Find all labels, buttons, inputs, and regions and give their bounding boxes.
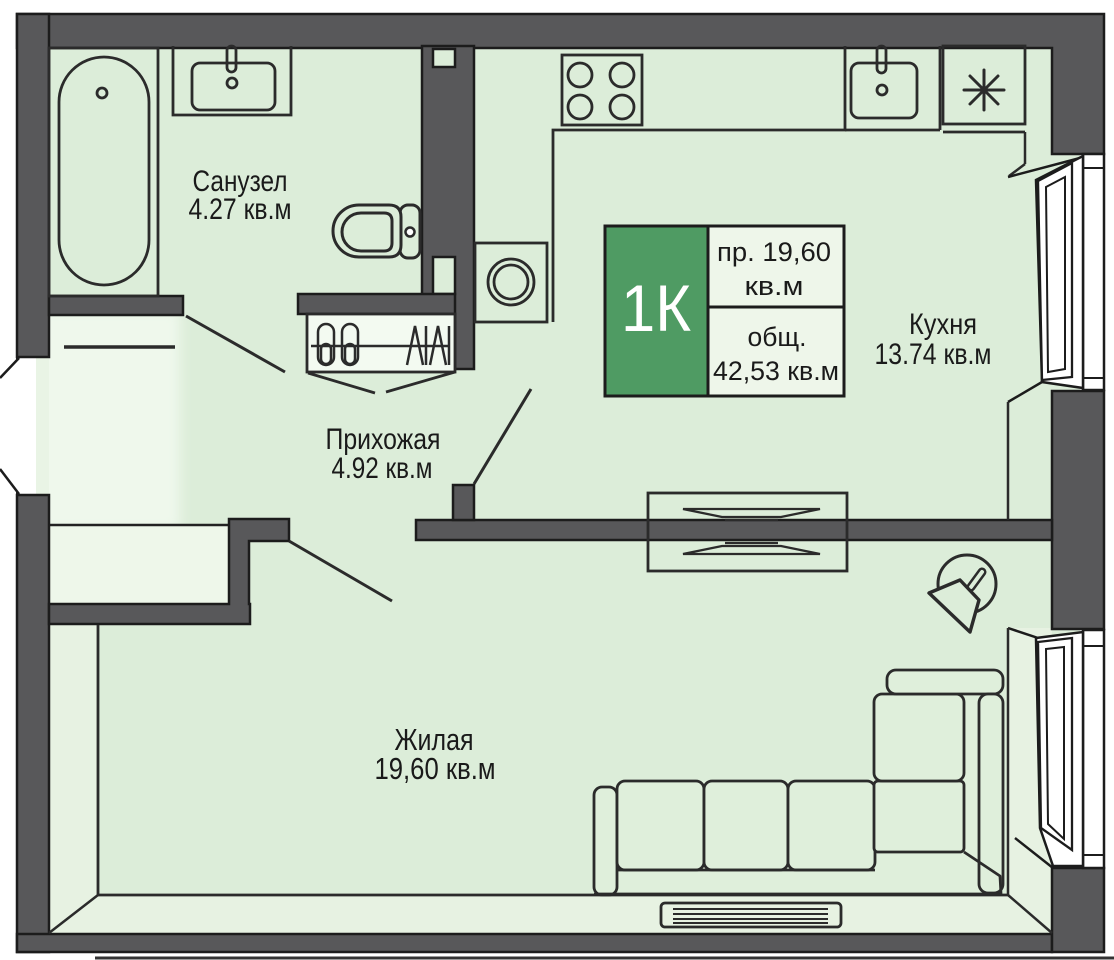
svg-text:Кухня: Кухня [909,308,977,341]
svg-text:1К: 1К [621,271,692,345]
svg-text:кв.м: кв.м [745,271,804,301]
svg-text:19,60 кв.м: 19,60 кв.м [375,751,496,786]
svg-text:общ.: общ. [748,322,807,352]
svg-text:42,53 кв.м: 42,53 кв.м [713,356,839,386]
svg-text:пр. 19,60: пр. 19,60 [717,237,831,267]
svg-text:4.92 кв.м: 4.92 кв.м [332,452,433,485]
svg-text:13.74 кв.м: 13.74 кв.м [875,338,992,371]
svg-text:4.27 кв.м: 4.27 кв.м [189,193,292,226]
